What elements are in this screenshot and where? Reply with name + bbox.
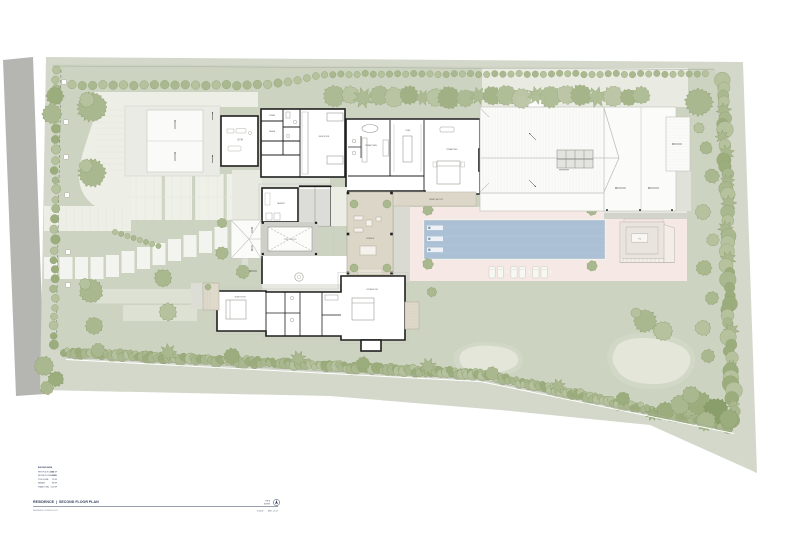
svg-text:RESIDENCE | SECOND FLOOR PLA: RESIDENCE | SECOND FLOOR PLAN	[33, 500, 99, 504]
svg-text:980 SF: 980 SF	[52, 483, 57, 485]
svg-text:LAUNDRY: LAUNDRY	[277, 202, 286, 205]
svg-text:9,241 SF: 9,241 SF	[51, 486, 57, 488]
svg-text:OPEN TO BELOW: OPEN TO BELOW	[284, 239, 297, 241]
svg-text:3,124 SF: 3,124 SF	[51, 475, 57, 477]
svg-text:VIP BEDROOM: VIP BEDROOM	[366, 289, 378, 291]
svg-text:BUILDING AREA: BUILDING AREA	[38, 466, 53, 469]
svg-text:4,562 SF: 4,562 SF	[51, 472, 57, 474]
svg-text:ROBE: ROBE	[406, 130, 411, 132]
svg-text:SCALE:: SCALE:	[257, 510, 264, 513]
svg-text:POOL HOUSE: POOL HOUSE	[38, 479, 48, 481]
svg-text:GUEST ROOM: GUEST ROOM	[235, 297, 247, 299]
svg-text:NORTH: NORTH	[264, 504, 271, 506]
svg-text:SAUNA: SAUNA	[269, 130, 276, 133]
svg-text:3/32" = 1'-0": 3/32" = 1'-0"	[268, 511, 279, 513]
svg-text:RESIDENCE, UPPER FLOOR: RESIDENCE, UPPER FLOOR	[33, 510, 58, 512]
svg-text:575 SF: 575 SF	[52, 479, 57, 481]
svg-text:GYM: GYM	[237, 139, 242, 142]
svg-text:BUNK ROOM: BUNK ROOM	[319, 136, 330, 138]
svg-text:STEAM: STEAM	[269, 114, 275, 117]
